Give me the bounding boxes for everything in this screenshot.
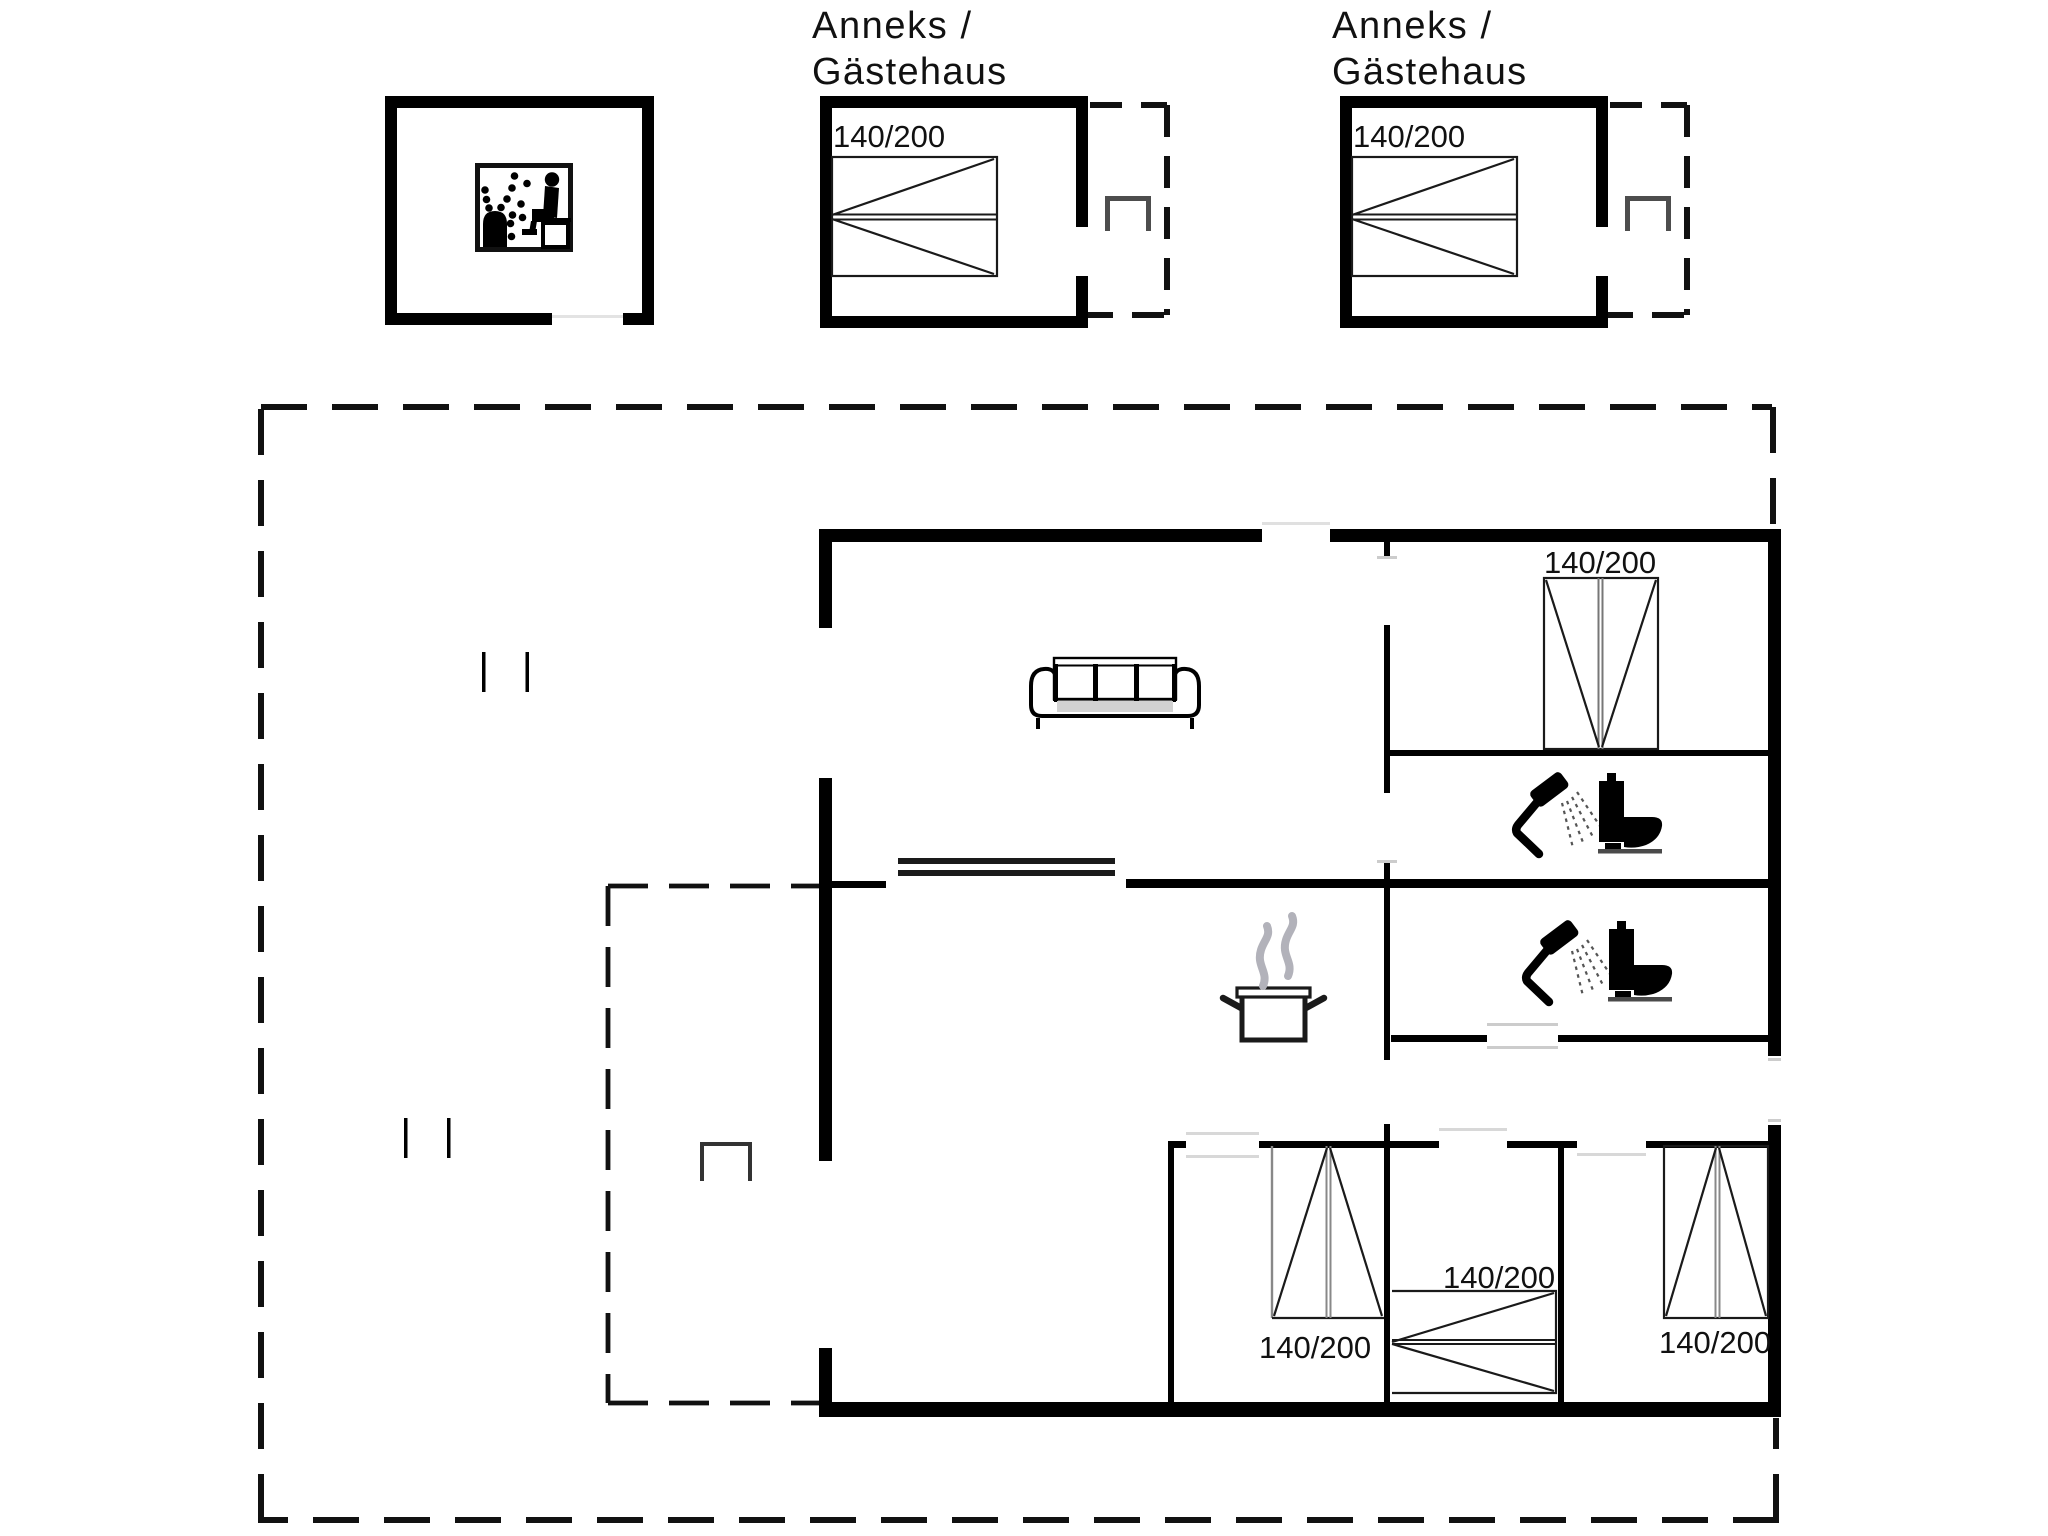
svg-text:140/200: 140/200 (833, 119, 945, 154)
svg-text:Gästehaus: Gästehaus (1332, 51, 1527, 93)
svg-text:Anneks /: Anneks / (812, 5, 973, 47)
svg-text:140/200: 140/200 (1259, 1330, 1371, 1365)
svg-text:140/200: 140/200 (1544, 545, 1656, 580)
svg-text:Gästehaus: Gästehaus (812, 51, 1007, 93)
svg-text:140/200: 140/200 (1659, 1325, 1771, 1360)
svg-text:Anneks /: Anneks / (1332, 5, 1493, 47)
svg-text:140/200: 140/200 (1353, 119, 1465, 154)
svg-text:140/200: 140/200 (1443, 1260, 1555, 1295)
